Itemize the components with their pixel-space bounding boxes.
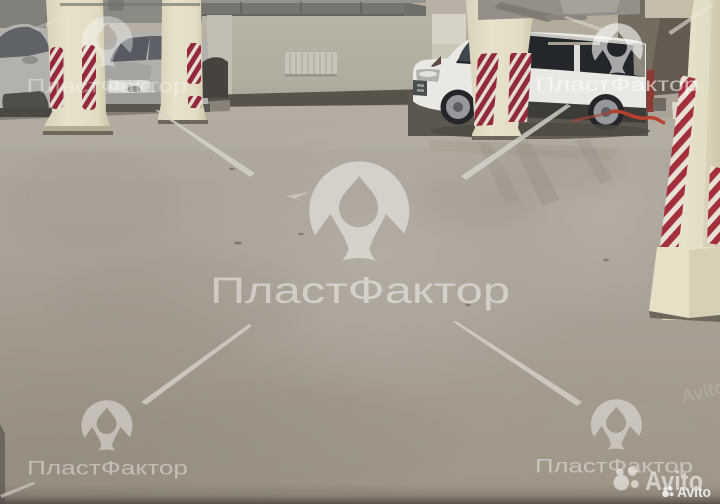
svg-text:ПластФактор: ПластФактор [210, 270, 510, 311]
svg-text:ПластФактор: ПластФактор [536, 75, 699, 96]
svg-text:ПластФактор: ПластФактор [27, 77, 188, 98]
svg-text:ПластФактор: ПластФактор [27, 459, 188, 480]
svg-text:Avito: Avito [677, 484, 711, 501]
